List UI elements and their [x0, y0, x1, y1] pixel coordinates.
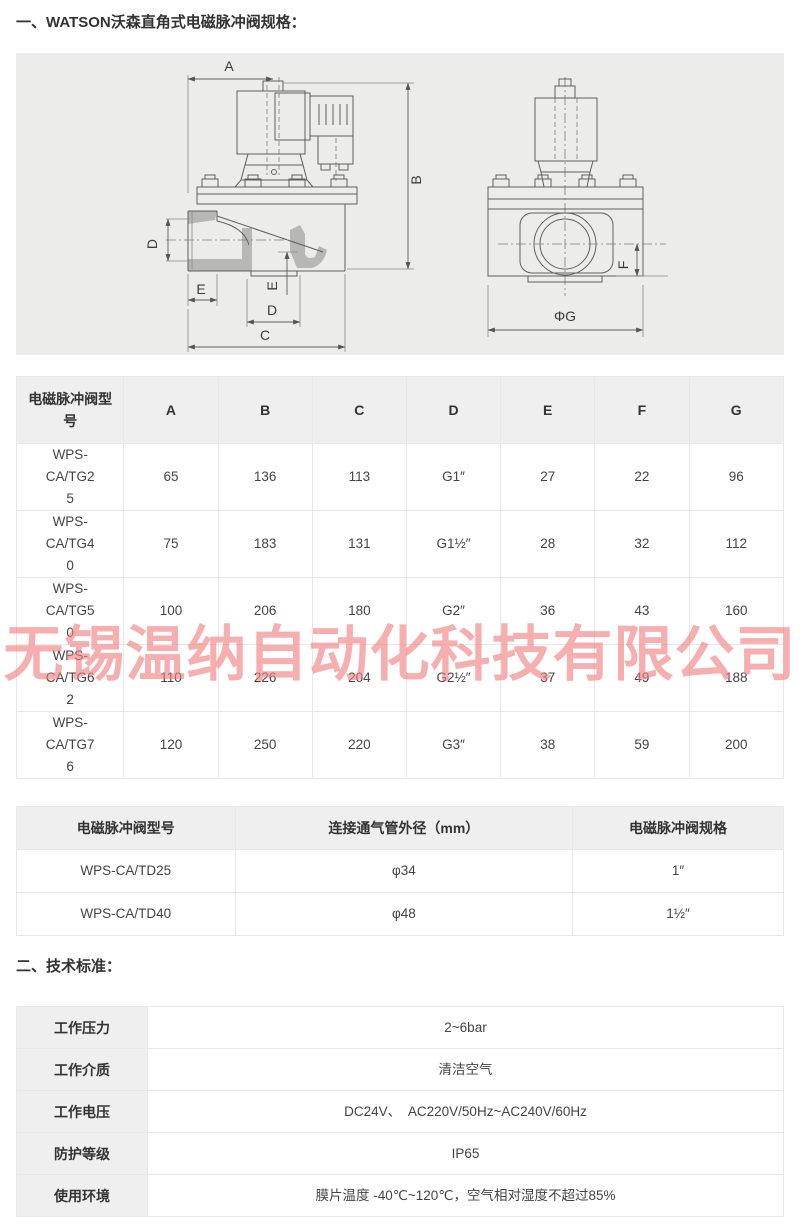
- table-cell: WPS-CA/TG40: [17, 511, 124, 578]
- dimension-table: 电磁脉冲阀型号ABCDEFG WPS-CA/TG2565136113G1″272…: [16, 376, 784, 779]
- dim-label-a: A: [224, 58, 234, 74]
- table-cell: 220: [312, 712, 406, 779]
- valve-side-view: A B D E E: [144, 58, 424, 352]
- table-cell: WPS-CA/TG76: [17, 712, 124, 779]
- table-cell: 136: [218, 444, 312, 511]
- dim-label-f: F: [615, 261, 631, 270]
- table-cell: G3″: [406, 712, 500, 779]
- column-header: 连接通气管外径（mm）: [235, 807, 572, 850]
- table-cell: 1″: [573, 850, 784, 893]
- table-row: WPS-CA/TG4075183131G1½″2832112: [17, 511, 784, 578]
- table-cell: 110: [124, 645, 218, 712]
- table-row: WPS-CA/TD25φ341″: [17, 850, 784, 893]
- table-cell: φ48: [235, 893, 572, 936]
- table-cell: 160: [689, 578, 784, 645]
- table-row: WPS-CA/TG50100206180G2″3643160: [17, 578, 784, 645]
- dimension-table-header-row: 电磁脉冲阀型号ABCDEFG: [17, 377, 784, 444]
- table-cell: DC24V、 AC220V/50Hz~AC240V/60Hz: [148, 1091, 784, 1133]
- table-cell: 49: [595, 645, 689, 712]
- table-cell: G1½″: [406, 511, 500, 578]
- column-header: 电磁脉冲阀型号: [17, 807, 236, 850]
- table-cell: 96: [689, 444, 784, 511]
- table-cell: 工作介质: [17, 1049, 148, 1091]
- column-header: 电磁脉冲阀规格: [573, 807, 784, 850]
- valve-drawing-area: .ln{fill:none;stroke:#5f5f5f;stroke-widt…: [16, 53, 784, 355]
- technical-standard-table: 工作压力2~6bar工作介质清洁空气工作电压DC24V、 AC220V/50Hz…: [16, 1006, 784, 1217]
- table-cell: IP65: [148, 1133, 784, 1175]
- table-cell: G2″: [406, 578, 500, 645]
- table-row: 防护等级IP65: [17, 1133, 784, 1175]
- table-cell: 113: [312, 444, 406, 511]
- column-header: C: [312, 377, 406, 444]
- table-row: 工作介质清洁空气: [17, 1049, 784, 1091]
- dim-label-d-bottom: D: [267, 302, 277, 318]
- table-cell: 工作电压: [17, 1091, 148, 1133]
- table-cell: 1½″: [573, 893, 784, 936]
- table-cell: 204: [312, 645, 406, 712]
- dim-label-e-center: E: [264, 281, 280, 290]
- dim-label-b: B: [408, 175, 424, 184]
- section2-title: 二、技术标准：: [16, 936, 784, 976]
- table-row: 使用环境膜片温度 -40℃~120℃，空气相对湿度不超过85%: [17, 1175, 784, 1217]
- table-cell: 工作压力: [17, 1007, 148, 1049]
- column-header: G: [689, 377, 784, 444]
- dim-label-e-left: E: [196, 281, 205, 297]
- column-header: A: [124, 377, 218, 444]
- section1-title: 一、WATSON沃森直角式电磁脉冲阀规格：: [16, 0, 784, 32]
- table-cell: 22: [595, 444, 689, 511]
- table-cell: 112: [689, 511, 784, 578]
- table-cell: 200: [689, 712, 784, 779]
- table-cell: 188: [689, 645, 784, 712]
- column-header: 电磁脉冲阀型号: [17, 377, 124, 444]
- table-row: 工作电压DC24V、 AC220V/50Hz~AC240V/60Hz: [17, 1091, 784, 1133]
- pipe-connection-table: 电磁脉冲阀型号连接通气管外径（mm）电磁脉冲阀规格 WPS-CA/TD25φ34…: [16, 806, 784, 936]
- table-cell: 226: [218, 645, 312, 712]
- table-cell: 27: [501, 444, 595, 511]
- table-cell: 28: [501, 511, 595, 578]
- column-header: E: [501, 377, 595, 444]
- table-cell: 32: [595, 511, 689, 578]
- table-cell: G1″: [406, 444, 500, 511]
- table-cell: 250: [218, 712, 312, 779]
- dim-label-c: C: [260, 327, 270, 343]
- dim-label-d-left: D: [144, 239, 160, 249]
- table-cell: 膜片温度 -40℃~120℃，空气相对湿度不超过85%: [148, 1175, 784, 1217]
- table-cell: 120: [124, 712, 218, 779]
- table-cell: WPS-CA/TG62: [17, 645, 124, 712]
- dim-label-phi-g: ΦG: [554, 308, 576, 324]
- table-cell: 59: [595, 712, 689, 779]
- table-cell: WPS-CA/TD40: [17, 893, 236, 936]
- table-row: 工作压力2~6bar: [17, 1007, 784, 1049]
- table-row: WPS-CA/TG2565136113G1″272296: [17, 444, 784, 511]
- column-header: F: [595, 377, 689, 444]
- column-header: B: [218, 377, 312, 444]
- table-cell: 183: [218, 511, 312, 578]
- table-cell: φ34: [235, 850, 572, 893]
- table-row: WPS-CA/TD40φ481½″: [17, 893, 784, 936]
- table-cell: G2½″: [406, 645, 500, 712]
- table-cell: 清洁空气: [148, 1049, 784, 1091]
- table-cell: 防护等级: [17, 1133, 148, 1175]
- valve-technical-drawing: .ln{fill:none;stroke:#5f5f5f;stroke-widt…: [16, 53, 784, 355]
- product-spec-page: 一、WATSON沃森直角式电磁脉冲阀规格： .ln{fill:none;stro…: [0, 0, 800, 1217]
- pipe-table-header-row: 电磁脉冲阀型号连接通气管外径（mm）电磁脉冲阀规格: [17, 807, 784, 850]
- table-cell: 36: [501, 578, 595, 645]
- table-cell: 65: [124, 444, 218, 511]
- table-cell: WPS-CA/TG25: [17, 444, 124, 511]
- table-cell: 100: [124, 578, 218, 645]
- column-header: D: [406, 377, 500, 444]
- table-row: WPS-CA/TG62110226204G2½″3749188: [17, 645, 784, 712]
- table-cell: 38: [501, 712, 595, 779]
- table-cell: 2~6bar: [148, 1007, 784, 1049]
- table-cell: 75: [124, 511, 218, 578]
- table-row: WPS-CA/TG76120250220G3″3859200: [17, 712, 784, 779]
- table-cell: 206: [218, 578, 312, 645]
- table-cell: WPS-CA/TD25: [17, 850, 236, 893]
- table-cell: 131: [312, 511, 406, 578]
- table-cell: 180: [312, 578, 406, 645]
- valve-front-view: F ΦG: [488, 77, 668, 337]
- table-cell: WPS-CA/TG50: [17, 578, 124, 645]
- table-cell: 使用环境: [17, 1175, 148, 1217]
- table-cell: 43: [595, 578, 689, 645]
- table-cell: 37: [501, 645, 595, 712]
